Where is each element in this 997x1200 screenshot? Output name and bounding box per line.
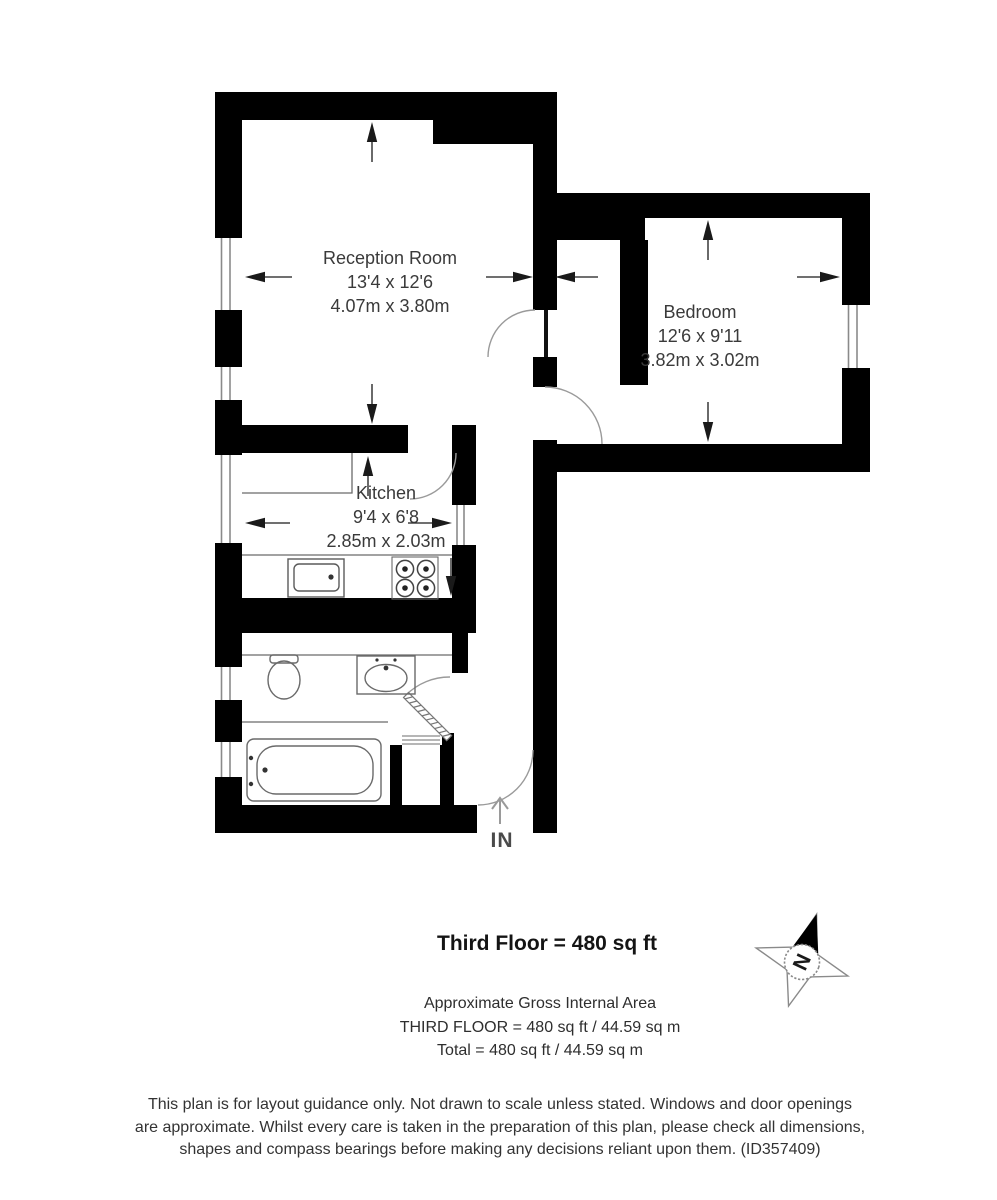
room-dimensions-imperial: 13'4 x 12'6 bbox=[323, 270, 457, 294]
room-name: Kitchen bbox=[326, 481, 445, 505]
area-summary-total-line: Total = 480 sq ft / 44.59 sq m bbox=[400, 1039, 681, 1063]
area-summary-floor-line: THIRD FLOOR = 480 sq ft / 44.59 sq m bbox=[400, 1016, 681, 1040]
cupboard-door-lines bbox=[402, 736, 440, 744]
dimension-arrow bbox=[703, 402, 713, 442]
dimension-arrow bbox=[703, 220, 713, 260]
room-dimensions-metric: 3.82m x 3.02m bbox=[640, 348, 759, 372]
disclaimer-text: This plan is for layout guidance only. N… bbox=[40, 1094, 960, 1162]
bathroom-door-arc bbox=[406, 677, 450, 695]
room-name: Bedroom bbox=[640, 300, 759, 324]
sink-icon bbox=[288, 559, 344, 597]
room-dimensions-metric: 4.07m x 3.80m bbox=[323, 294, 457, 318]
disclaimer-line: are approximate. Whilst every care is ta… bbox=[40, 1117, 960, 1140]
reception-room-label: Reception Room 13'4 x 12'6 4.07m x 3.80m bbox=[323, 246, 457, 318]
room-dimensions-imperial: 12'6 x 9'11 bbox=[640, 324, 759, 348]
hob-icon bbox=[392, 557, 438, 599]
dimension-arrow bbox=[797, 272, 840, 282]
room-dimensions-imperial: 9'4 x 6'8 bbox=[326, 505, 445, 529]
bathtub-icon bbox=[247, 739, 381, 801]
disclaimer-line: shapes and compass bearings before makin… bbox=[40, 1139, 960, 1162]
area-summary: Approximate Gross Internal Area THIRD FL… bbox=[400, 992, 681, 1063]
bedroom-door-arc bbox=[545, 387, 602, 444]
basin-icon bbox=[357, 656, 415, 694]
toilet-icon bbox=[268, 655, 300, 699]
entrance-in-label: IN bbox=[491, 829, 514, 853]
bedroom-label: Bedroom 12'6 x 9'11 3.82m x 3.02m bbox=[640, 300, 759, 372]
compass-icon: N bbox=[743, 900, 863, 1020]
room-name: Reception Room bbox=[323, 246, 457, 270]
dimension-arrow bbox=[245, 518, 290, 528]
entrance-door-arc bbox=[478, 750, 533, 805]
floor-area-title: Third Floor = 480 sq ft bbox=[437, 932, 657, 956]
dimension-arrow bbox=[367, 122, 377, 162]
reception-door-arc bbox=[488, 310, 535, 357]
dimension-arrow bbox=[486, 272, 533, 282]
entrance-arrow-icon bbox=[492, 798, 508, 824]
kitchen-label: Kitchen 9'4 x 6'8 2.85m x 2.03m bbox=[326, 481, 445, 553]
room-dimensions-metric: 2.85m x 2.03m bbox=[326, 529, 445, 553]
dimension-arrow bbox=[367, 384, 377, 424]
floor-plan-page: N Reception Room 13'4 x 12'6 4.07m x 3.8… bbox=[0, 0, 997, 1200]
area-summary-subtitle: Approximate Gross Internal Area bbox=[400, 992, 681, 1016]
dimension-arrow bbox=[555, 272, 598, 282]
disclaimer-line: This plan is for layout guidance only. N… bbox=[40, 1094, 960, 1117]
dimension-arrow bbox=[245, 272, 292, 282]
bathroom-door-leaf bbox=[404, 693, 452, 741]
